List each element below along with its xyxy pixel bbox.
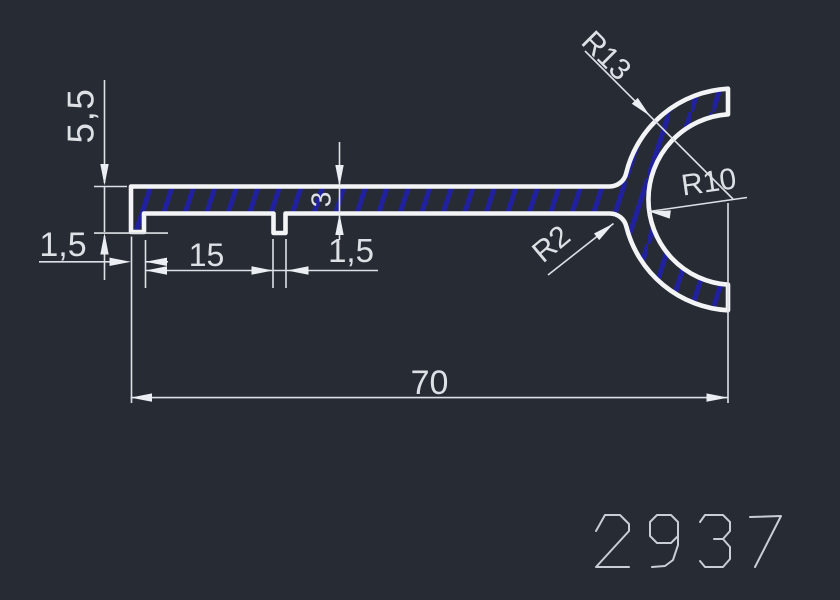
svg-text:1,5: 1,5 — [39, 226, 86, 264]
svg-text:3: 3 — [305, 192, 336, 208]
svg-text:70: 70 — [411, 364, 449, 402]
svg-text:15: 15 — [189, 237, 225, 273]
svg-text:1,5: 1,5 — [328, 232, 374, 269]
svg-text:5,5: 5,5 — [60, 88, 101, 144]
